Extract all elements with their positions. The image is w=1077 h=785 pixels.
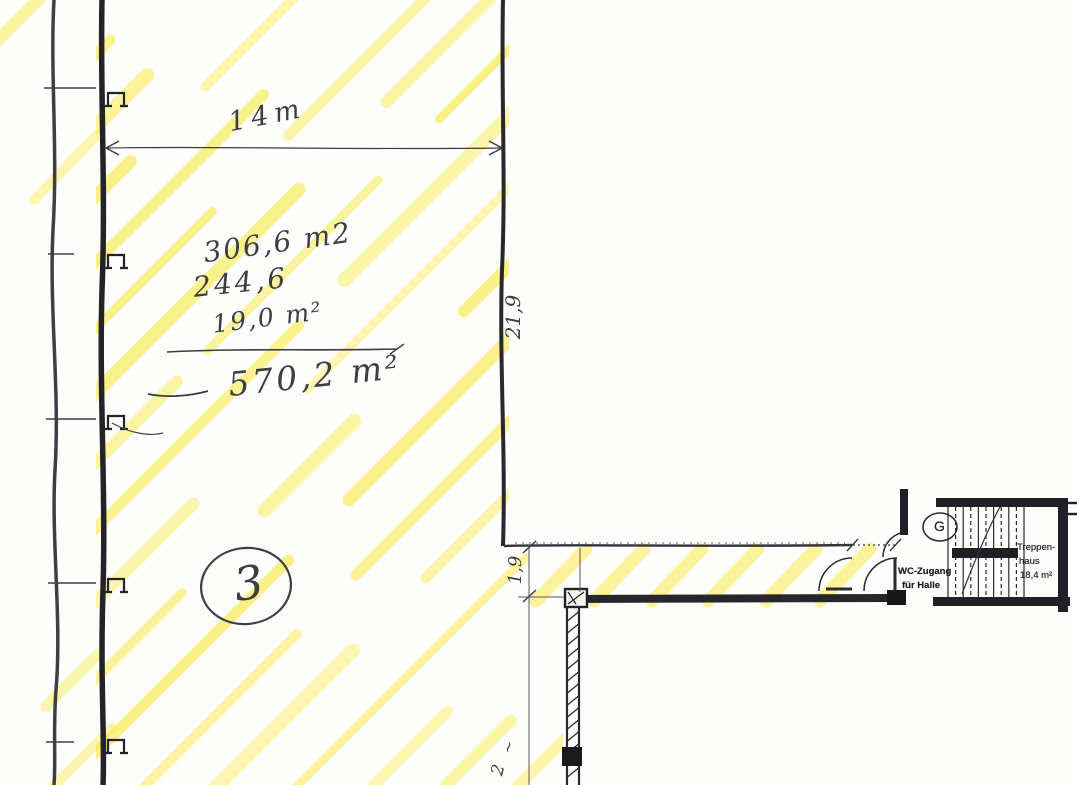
left-exterior-wall bbox=[101, 0, 104, 785]
dimension-line-14m bbox=[106, 141, 502, 155]
stairwell-label-line-2: haus bbox=[1019, 556, 1040, 567]
floorplan-scan: 14m 306,6 m2 244,6 19,0 m² 570,2 m² 3 21… bbox=[0, 0, 1077, 785]
stairwell-badge-label: G bbox=[934, 518, 945, 534]
stair-top-wall bbox=[936, 498, 1064, 507]
stair-landing bbox=[952, 548, 1018, 558]
stairwell-area-label: 18,4 m² bbox=[1020, 570, 1052, 581]
wc-access-label-line-1: WC-Zugang bbox=[898, 566, 951, 577]
column-block bbox=[565, 589, 587, 607]
stair-bottom-wall bbox=[933, 597, 1070, 606]
stair-lobby-left-wall bbox=[900, 489, 908, 535]
stairwell-label-line-1: Treppen- bbox=[1017, 542, 1055, 553]
corridor-wall-end-block bbox=[887, 590, 906, 605]
dimension-label-length: 21,9 bbox=[501, 282, 523, 352]
wc-access-label-line-2: für Halle bbox=[902, 580, 940, 591]
hall-right-wall bbox=[501, 0, 504, 546]
lower-wall-anchor-block bbox=[562, 747, 582, 766]
corridor-top-wall bbox=[504, 543, 852, 546]
corridor-bottom-wall bbox=[568, 594, 890, 603]
dimension-label-corridor: 1,9 bbox=[505, 548, 523, 592]
door-arc bbox=[864, 558, 897, 591]
plan-linework bbox=[0, 0, 1077, 785]
